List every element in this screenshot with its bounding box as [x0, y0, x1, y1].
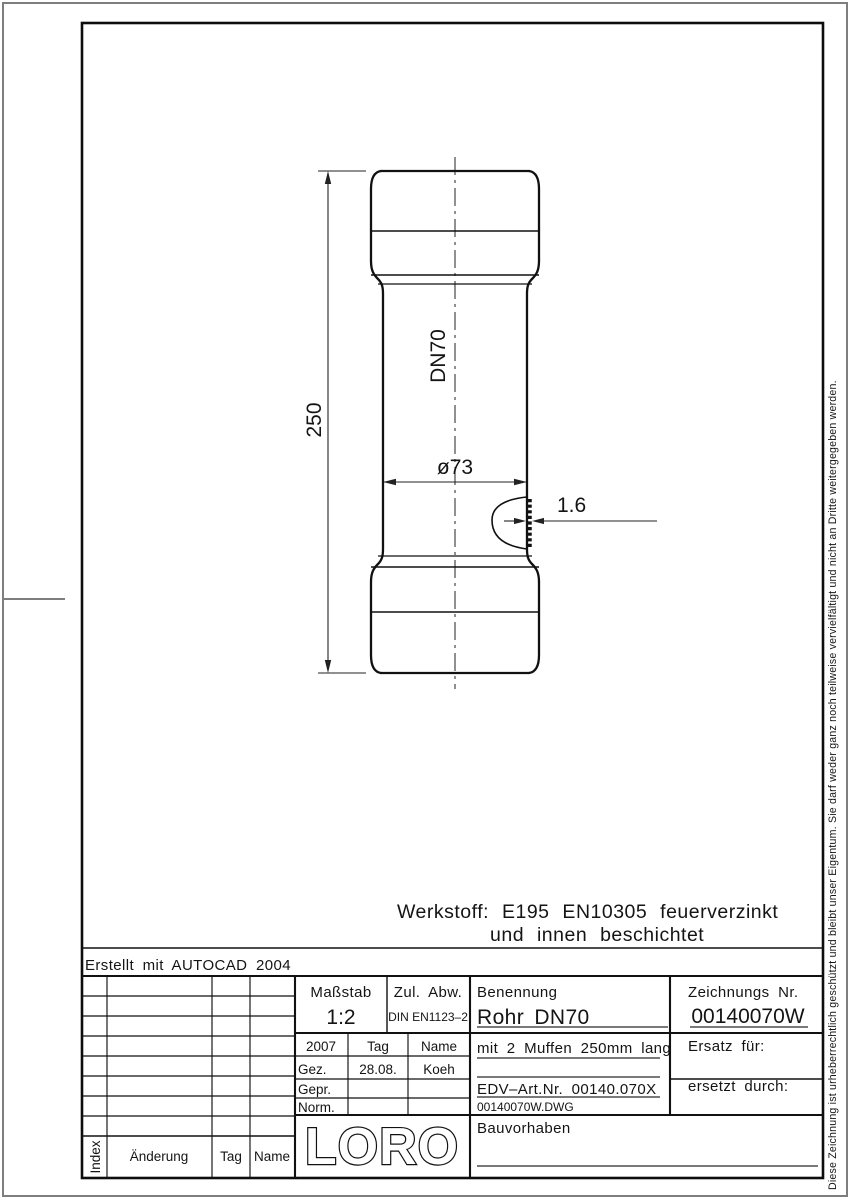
dwg-file: 00140070W.DWG: [477, 1100, 574, 1114]
dim-250-label: 250: [303, 402, 326, 437]
gez-name: Koeh: [423, 1062, 455, 1077]
gez-date: 28.08.: [359, 1062, 397, 1077]
approval-tag-header: Tag: [367, 1039, 389, 1054]
material-note: Werkstoff: E195 EN10305 feuerverzinkt un…: [397, 901, 778, 946]
material-line2: und innen beschichtet: [490, 924, 704, 946]
rev-name-header: Name: [254, 1149, 290, 1164]
bauvorhaben-label: Bauvorhaben: [477, 1120, 571, 1137]
rev-tag-header: Tag: [220, 1149, 242, 1164]
pipe-outline-left: [371, 171, 383, 673]
benennung-label: Benennung: [477, 984, 557, 1001]
drawing-sheet: 250 DN70 ø73 1.6 Werkstoff: E195 EN10305…: [0, 0, 850, 1200]
rev-aenderung-header: Änderung: [130, 1149, 189, 1164]
gez-label: Gez.: [298, 1062, 327, 1077]
rev-index-header: Index: [88, 1140, 103, 1173]
pipe-drawing: [371, 157, 539, 689]
material-line1: Werkstoff: E195 EN10305 feuerverzinkt: [397, 901, 778, 923]
ersetzt-durch-label: ersetzt durch:: [688, 1078, 788, 1095]
dimension-wall-thickness: 1.6: [492, 494, 657, 549]
norm-label: Norm.: [298, 1100, 335, 1115]
arrowhead-up: [325, 171, 331, 184]
description-text: mit 2 Muffen 250mm lang: [477, 1040, 671, 1057]
approval-name-header: Name: [421, 1039, 457, 1054]
masstab-value: 1:2: [326, 1006, 355, 1029]
loro-logo: LORO: [305, 1118, 459, 1176]
dim-diameter-label: ø73: [437, 456, 473, 479]
drawing-canvas: 250 DN70 ø73 1.6 Werkstoff: E195 EN10305…: [0, 0, 850, 1200]
arrowhead-right: [514, 479, 527, 485]
approval-year: 2007: [306, 1039, 336, 1054]
arrowhead-wall-inner: [514, 518, 526, 524]
dimension-length-250: 250: [303, 171, 366, 673]
title-block: Erstellt mit AUTOCAD 2004 Maßstab 1:2 Zu…: [82, 948, 823, 1178]
arrowhead-wall-outer: [532, 518, 544, 524]
ersatz-fuer-label: Ersatz für:: [688, 1038, 765, 1055]
dim-dn70-label: DN70: [427, 329, 450, 383]
created-with-label: Erstellt mit AUTOCAD 2004: [85, 957, 291, 974]
dim-wall-label: 1.6: [557, 494, 586, 517]
pipe-outline-right: [527, 171, 539, 673]
zeichnung-value: 00140070W: [691, 1005, 804, 1028]
copyright-vertical-note: Diese Zeichnung ist urheberrechtlich ges…: [827, 380, 839, 1190]
zul-abw-value: DIN EN1123–2: [388, 1010, 468, 1024]
edv-art-nr: EDV–Art.Nr. 00140.070X: [477, 1081, 657, 1098]
masstab-label: Maßstab: [310, 984, 371, 1001]
benennung-value: Rohr DN70: [477, 1006, 590, 1029]
arrowhead-left: [383, 479, 396, 485]
zul-abw-label: Zul. Abw.: [394, 984, 462, 1001]
wall-detail-bubble: [492, 497, 527, 549]
zeichnung-label: Zeichnungs Nr.: [688, 984, 798, 1001]
arrowhead-down: [325, 660, 331, 673]
gepr-label: Gepr.: [298, 1082, 331, 1097]
